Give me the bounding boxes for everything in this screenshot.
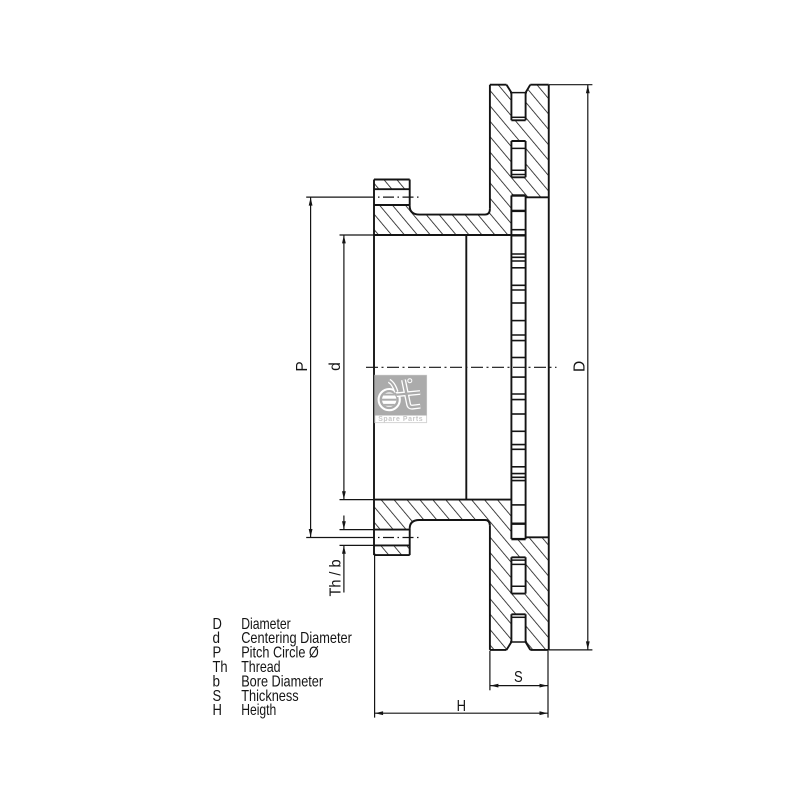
svg-text:P: P [294, 361, 311, 371]
svg-text:d: d [327, 362, 344, 371]
svg-text:H: H [213, 702, 222, 719]
svg-text:D: D [571, 361, 588, 372]
svg-text:Heigth: Heigth [241, 702, 276, 719]
svg-text:Spare Parts: Spare Parts [378, 416, 423, 423]
svg-text:H: H [457, 698, 466, 715]
svg-text:S: S [514, 669, 523, 686]
svg-text:Th / b: Th / b [327, 560, 344, 597]
